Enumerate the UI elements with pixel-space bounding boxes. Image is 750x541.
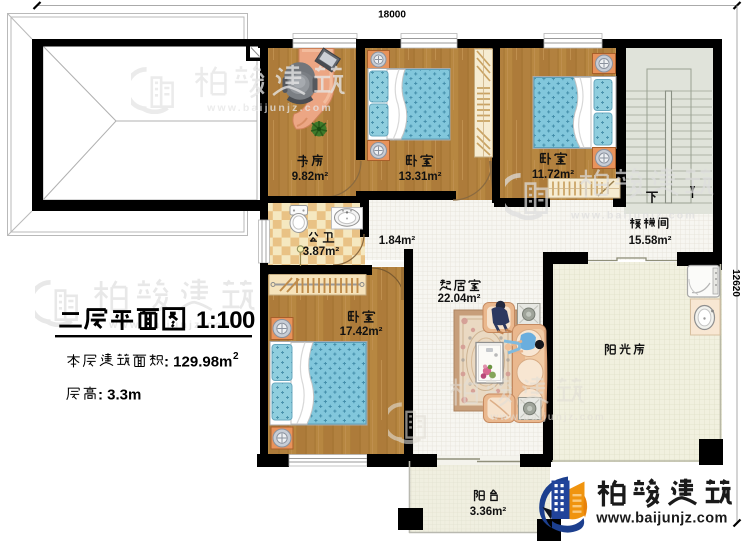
svg-text:2: 2 <box>233 351 239 362</box>
svg-text:3.87m²: 3.87m² <box>303 246 340 258</box>
svg-text:: 129.98m: : 129.98m <box>164 354 232 371</box>
svg-text:: 3.3m: : 3.3m <box>98 387 141 404</box>
svg-text:www.baijunjz.com: www.baijunjz.com <box>489 412 605 423</box>
svg-text:11.72m²: 11.72m² <box>532 169 574 181</box>
svg-text:18000: 18000 <box>378 10 406 21</box>
svg-text:17.42m²: 17.42m² <box>340 326 383 338</box>
svg-text:13.31m²: 13.31m² <box>399 171 442 183</box>
svg-text:1:100: 1:100 <box>196 307 255 334</box>
svg-text:1.84m²: 1.84m² <box>379 235 416 247</box>
svg-text:12620: 12620 <box>730 269 741 297</box>
svg-text:15.58m²: 15.58m² <box>629 235 672 247</box>
svg-text:22.04m²: 22.04m² <box>438 293 481 305</box>
svg-text:www.baijunjz.com: www.baijunjz.com <box>570 210 697 222</box>
svg-text:www.baijunjz.com: www.baijunjz.com <box>595 511 728 527</box>
svg-text:www.baijunjz.com: www.baijunjz.com <box>206 102 333 114</box>
svg-text:9.82m²: 9.82m² <box>292 171 329 183</box>
svg-text:3.36m²: 3.36m² <box>470 506 507 518</box>
